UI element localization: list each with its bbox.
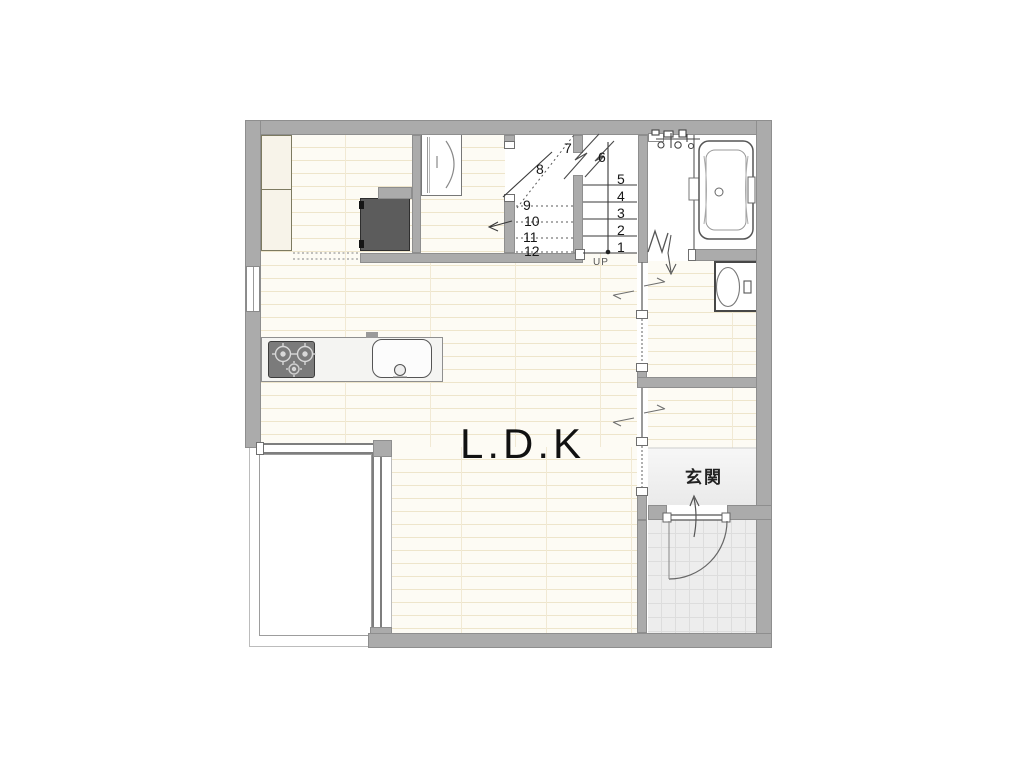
door-jamb [636,363,648,372]
door-jamb [636,437,648,446]
stair-step-number: 12 [524,244,540,258]
built-in-counter [421,133,462,196]
bathroom-window [648,133,664,142]
door-jamb [688,249,696,261]
door-jamb [636,310,648,319]
stair-step-number: 10 [524,214,540,228]
wall-bathroom-left [638,135,648,263]
wood-deck [259,454,372,636]
counter-rail [427,137,430,193]
room-label-ldk: L.D.K [460,423,585,465]
floor-plan-canvas: L.D.K 玄関 UP 1 2 3 4 5 6 7 8 9 10 11 12 [0,0,1024,768]
wall-bathroom-bottom [695,249,757,261]
wall-hall-stub [637,495,647,520]
refrigerator-hinge [359,201,364,209]
wall-deck-corner [373,440,392,457]
floor-entrance-porch-tiles [648,520,756,633]
window-center-line [253,267,254,311]
stair-step-number: 1 [617,240,625,254]
stair-step-number: 6 [598,150,606,164]
floor-entrance-hall [648,388,756,448]
stair-step-number: 8 [536,162,544,176]
wall-porch-left [637,520,647,633]
wall-outer-right [756,120,772,648]
refrigerator-hinge [359,240,364,248]
wall-stair-mid-top [573,135,583,153]
floor-ldk-lower [377,447,637,633]
window-jamb [256,442,264,455]
staircase-treads-right [583,185,637,253]
kitchen-sink [372,339,432,378]
sliding-window-deck-horizontal [258,443,382,454]
stair-step-number: 2 [617,223,625,237]
wall-fridge-stub [378,187,412,199]
stair-step-number: 5 [617,172,625,186]
door-jamb [504,194,515,202]
stair-step-number: 3 [617,206,625,220]
wall-outer-bottom [368,633,772,648]
wall-stair-mid-bottom [573,175,583,253]
door-jamb [504,141,515,149]
wall-stair-left-bottom [504,201,515,253]
stair-up-label: UP [593,258,609,268]
room-label-entrance: 玄関 [685,469,723,486]
washbasin-vanity [714,261,758,312]
wall-entry-door-left [648,505,667,520]
window-left-wall [246,266,260,312]
refrigerator [360,198,410,251]
wall-washroom-bottom [637,377,757,388]
sink-faucet [366,332,378,338]
wall-room-divider [412,135,421,253]
wall-kitchen-stairs-bottom [360,253,583,263]
gas-stove [268,341,315,378]
stair-step-number: 4 [617,189,625,203]
closet-cabinet-lower [261,189,292,251]
wall-end-cap [575,249,585,260]
wall-outer-top [245,120,772,135]
floor-bathroom [648,135,756,249]
stair-step-number: 9 [523,198,531,212]
stair-step-number: 7 [564,141,572,155]
sliding-window-deck-vertical [372,452,382,636]
closet-cabinet-upper [261,135,292,190]
wall-entry-door-right [727,505,772,520]
door-jamb [636,487,648,496]
stair-step-number: 11 [523,230,538,244]
